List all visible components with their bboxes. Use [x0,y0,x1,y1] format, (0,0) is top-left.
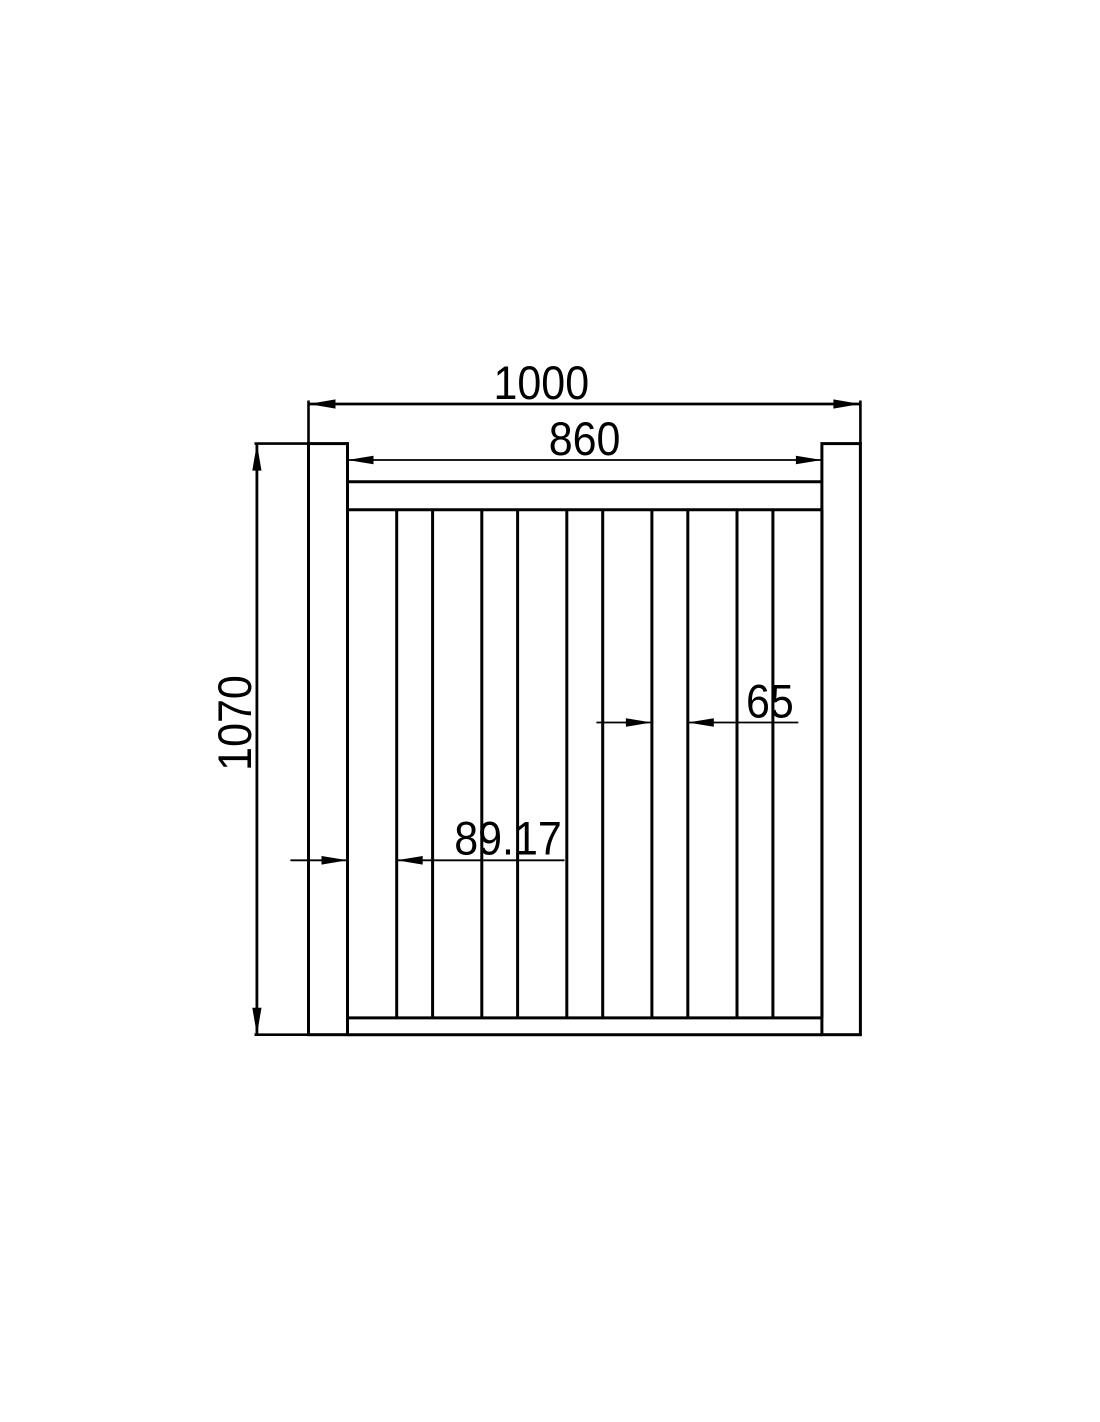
svg-text:1000: 1000 [493,356,589,409]
svg-text:1070: 1070 [208,675,261,771]
svg-text:860: 860 [549,412,621,465]
svg-text:89.17: 89.17 [454,812,562,865]
svg-text:65: 65 [746,675,794,728]
